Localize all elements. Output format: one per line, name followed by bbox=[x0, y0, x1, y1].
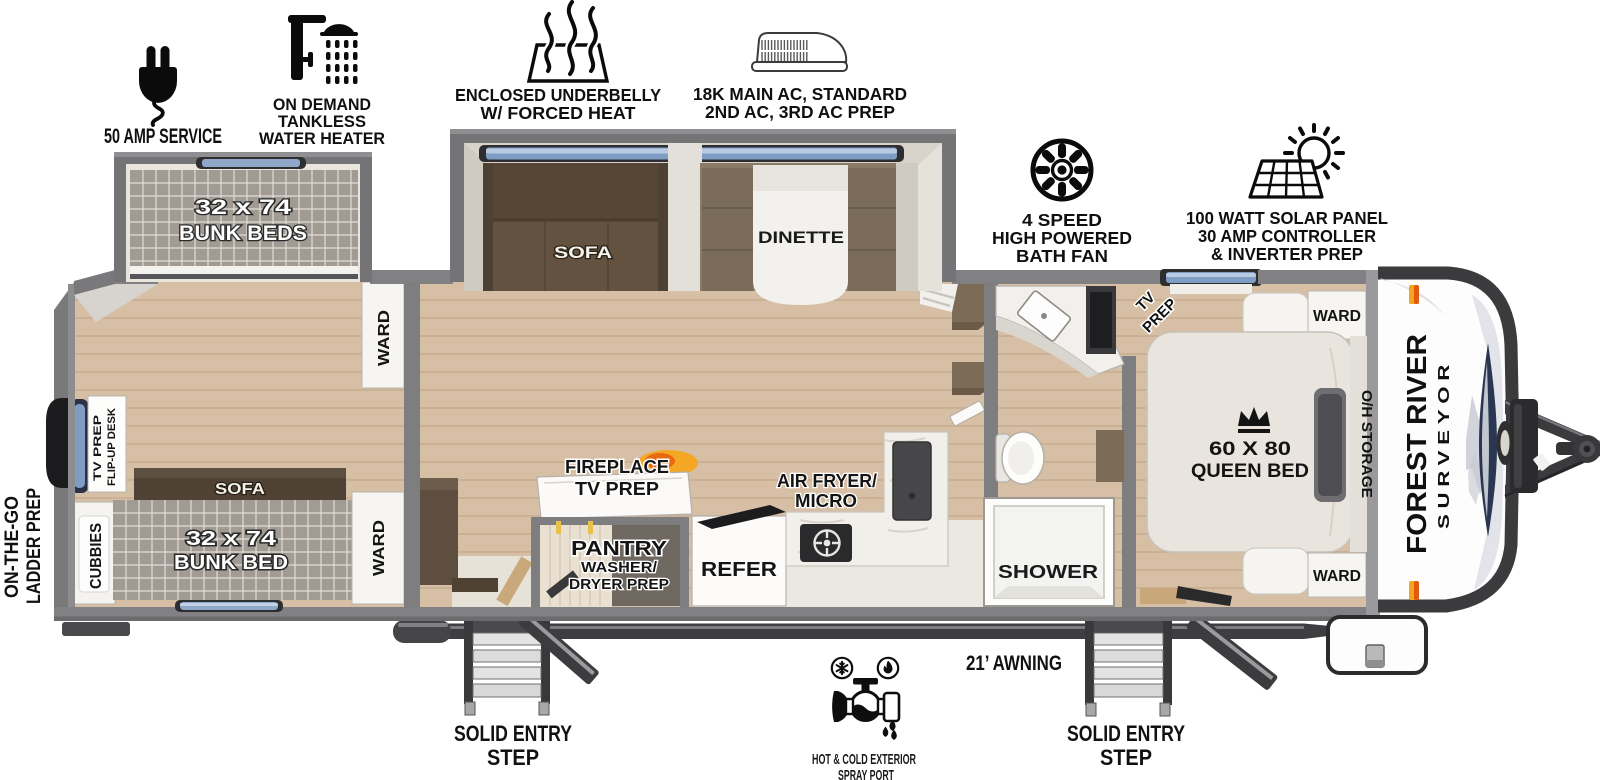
svg-text:BATH FAN: BATH FAN bbox=[1016, 246, 1108, 266]
svg-text:SOFA: SOFA bbox=[215, 481, 265, 498]
svg-text:O/H STORAGE: O/H STORAGE bbox=[1358, 390, 1374, 498]
svg-text:18K MAIN AC, STANDARD: 18K MAIN AC, STANDARD bbox=[693, 84, 907, 104]
svg-text:& INVERTER PREP: & INVERTER PREP bbox=[1211, 244, 1363, 264]
svg-text:STEP: STEP bbox=[1100, 745, 1152, 770]
svg-text:REFER: REFER bbox=[701, 559, 778, 581]
svg-text:QUEEN BED: QUEEN BED bbox=[1191, 461, 1309, 482]
svg-text:HIGH POWERED: HIGH POWERED bbox=[992, 228, 1132, 248]
svg-text:WARD: WARD bbox=[1313, 568, 1361, 585]
svg-text:WASHER/: WASHER/ bbox=[581, 559, 658, 576]
svg-text:SOFA: SOFA bbox=[554, 243, 612, 262]
svg-text:SPRAY PORT: SPRAY PORT bbox=[838, 767, 894, 780]
svg-text:SOLID ENTRY: SOLID ENTRY bbox=[454, 721, 572, 746]
svg-text:30 AMP CONTROLLER: 30 AMP CONTROLLER bbox=[1198, 226, 1376, 246]
svg-text:MICRO: MICRO bbox=[795, 491, 857, 511]
svg-text:TV PREP: TV PREP bbox=[92, 415, 104, 481]
svg-text:HOT & COLD EXTERIOR: HOT & COLD EXTERIOR bbox=[812, 751, 916, 768]
svg-text:50 AMP SERVICE: 50 AMP SERVICE bbox=[104, 125, 222, 148]
svg-text:DINETTE: DINETTE bbox=[758, 228, 844, 247]
svg-text:4 SPEED: 4 SPEED bbox=[1022, 210, 1102, 230]
svg-text:60 X 80: 60 X 80 bbox=[1209, 439, 1291, 460]
svg-text:32 x 74: 32 x 74 bbox=[186, 528, 277, 550]
svg-text:STEP: STEP bbox=[487, 745, 539, 770]
svg-text:ENCLOSED UNDERBELLY: ENCLOSED UNDERBELLY bbox=[455, 85, 661, 105]
svg-text:ON-THE-GO: ON-THE-GO bbox=[2, 496, 23, 598]
svg-text:WARD: WARD bbox=[371, 520, 388, 576]
svg-text:FIREPLACE: FIREPLACE bbox=[565, 457, 669, 477]
svg-text:21’ AWNING: 21’ AWNING bbox=[966, 652, 1062, 675]
svg-text:TV PREP: TV PREP bbox=[575, 479, 659, 499]
svg-text:SHOWER: SHOWER bbox=[998, 562, 1098, 582]
svg-text:100 WATT SOLAR PANEL: 100 WATT SOLAR PANEL bbox=[1186, 208, 1388, 228]
svg-text:SURVEYOR: SURVEYOR bbox=[1436, 359, 1453, 529]
svg-text:WATER HEATER: WATER HEATER bbox=[259, 129, 385, 148]
svg-text:2ND AC, 3RD AC PREP: 2ND AC, 3RD AC PREP bbox=[705, 102, 895, 122]
svg-text:LADDER PREP: LADDER PREP bbox=[24, 488, 45, 604]
svg-text:W/ FORCED HEAT: W/ FORCED HEAT bbox=[481, 103, 636, 123]
svg-text:FOREST RIVER: FOREST RIVER bbox=[1401, 334, 1432, 554]
svg-text:AIR FRYER/: AIR FRYER/ bbox=[777, 471, 877, 491]
svg-text:DRYER PREP: DRYER PREP bbox=[569, 576, 669, 593]
svg-text:WARD: WARD bbox=[1313, 308, 1361, 325]
svg-text:BUNK BEDS: BUNK BEDS bbox=[179, 222, 307, 245]
svg-text:WARD: WARD bbox=[376, 310, 393, 366]
svg-text:BUNK BED: BUNK BED bbox=[174, 552, 288, 574]
svg-text:FLIP-UP DESK: FLIP-UP DESK bbox=[106, 408, 118, 486]
svg-text:CUBBIES: CUBBIES bbox=[88, 523, 105, 589]
svg-text:SOLID ENTRY: SOLID ENTRY bbox=[1067, 721, 1185, 746]
svg-text:32 x 74: 32 x 74 bbox=[195, 196, 291, 219]
svg-text:PANTRY: PANTRY bbox=[571, 538, 668, 560]
